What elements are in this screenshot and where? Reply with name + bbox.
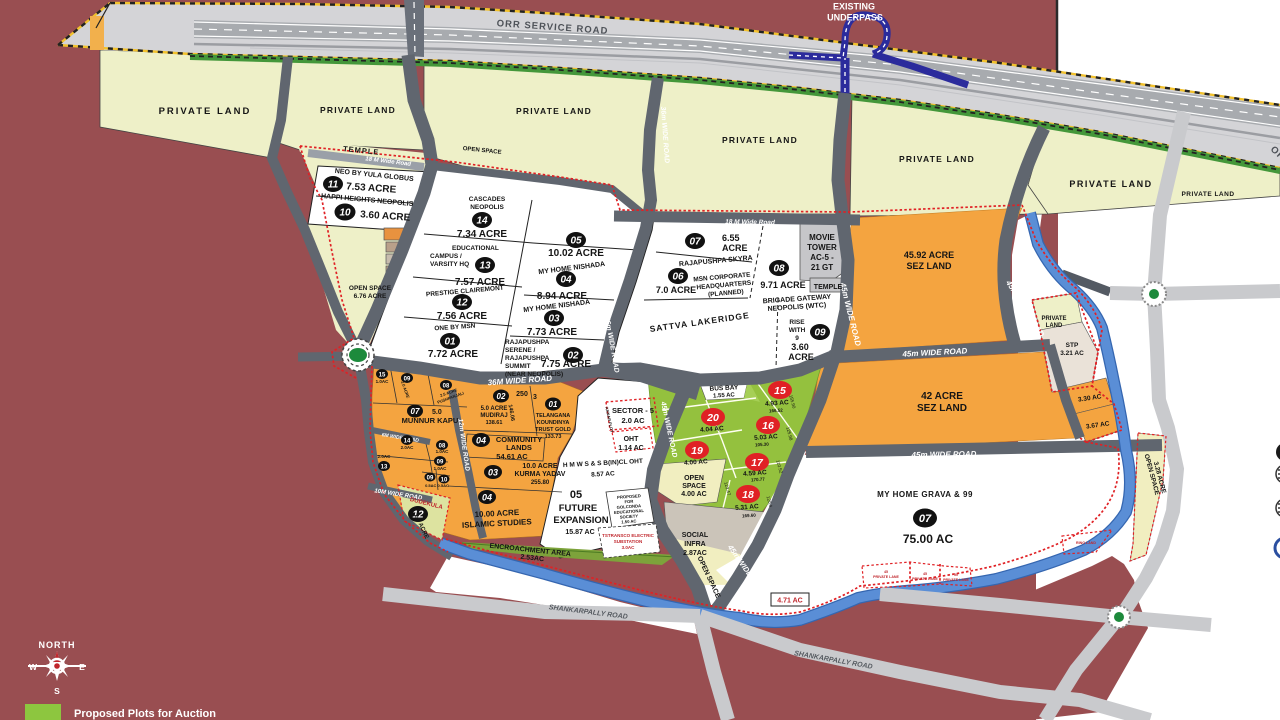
svg-text:45: 45 <box>923 572 927 576</box>
svg-text:20: 20 <box>706 412 719 424</box>
svg-text:18: 18 <box>742 489 754 501</box>
svg-text:NORTH: NORTH <box>39 640 76 650</box>
svg-text:PRIVATE LANE: PRIVATE LANE <box>873 575 899 579</box>
svg-text:11: 11 <box>328 180 339 191</box>
svg-text:08: 08 <box>773 264 785 275</box>
svg-text:TEMPLE: TEMPLE <box>814 284 843 291</box>
svg-text:STP: STP <box>1066 342 1079 349</box>
svg-text:SEZ LAND: SEZ LAND <box>907 261 953 271</box>
svg-text:PRIVATE LAND: PRIVATE LAND <box>722 135 798 145</box>
svg-text:15: 15 <box>774 385 786 397</box>
svg-text:UNDERPASS: UNDERPASS <box>827 13 883 23</box>
svg-text:17: 17 <box>751 457 764 469</box>
svg-text:7.73 ACRE: 7.73 ACRE <box>527 327 578 338</box>
svg-text:1.0AC: 1.0AC <box>376 379 390 384</box>
svg-text:EDUCATIONAL: EDUCATIONAL <box>452 245 499 252</box>
svg-text:6.55: 6.55 <box>722 233 740 243</box>
svg-text:3.21 AC: 3.21 AC <box>1060 350 1084 357</box>
svg-text:OHT: OHT <box>624 436 640 443</box>
svg-text:138.61: 138.61 <box>486 420 503 426</box>
svg-text:SECTOR - 5: SECTOR - 5 <box>612 406 654 415</box>
svg-text:1.50 AC: 1.50 AC <box>621 518 637 524</box>
svg-text:05: 05 <box>570 489 582 501</box>
svg-text:07: 07 <box>919 513 932 525</box>
svg-text:9.71 ACRE: 9.71 ACRE <box>760 280 805 290</box>
svg-text:7.56 ACRE: 7.56 ACRE <box>437 311 488 322</box>
svg-text:KURMA YADAV: KURMA YADAV <box>515 471 566 478</box>
svg-text:PRIVATE LAND: PRIVATE LAND <box>159 106 252 117</box>
svg-text:170.77: 170.77 <box>751 476 766 482</box>
svg-text:VARSITY HQ: VARSITY HQ <box>430 261 469 268</box>
svg-text:01: 01 <box>444 337 456 348</box>
svg-text:15: 15 <box>379 373 386 379</box>
svg-text:09: 09 <box>437 460 444 466</box>
svg-text:PRIVATE LANE: PRIVATE LANE <box>912 577 938 581</box>
svg-text:FUTURE: FUTURE <box>559 503 598 514</box>
svg-text:(NEAR NEOPOLIS): (NEAR NEOPOLIS) <box>505 371 563 378</box>
svg-text:2.0AC: 2.0AC <box>401 445 415 450</box>
svg-text:09: 09 <box>814 328 826 339</box>
svg-text:133.73: 133.73 <box>545 434 562 440</box>
svg-text:PRIVATE LAND: PRIVATE LAND <box>1069 179 1152 189</box>
svg-text:07: 07 <box>411 407 420 416</box>
svg-text:EXPANSION: EXPANSION <box>553 515 608 526</box>
svg-text:TELANGANA: TELANGANA <box>536 413 571 419</box>
svg-text:S: S <box>54 686 60 696</box>
svg-text:NEOPOLIS: NEOPOLIS <box>470 204 504 211</box>
svg-text:CAMPUS /: CAMPUS / <box>430 253 462 260</box>
svg-text:7.34 ACRE: 7.34 ACRE <box>457 229 508 240</box>
svg-text:01: 01 <box>549 400 558 409</box>
svg-text:MUNNUR KAPU: MUNNUR KAPU <box>402 416 459 425</box>
svg-text:SUMMIT: SUMMIT <box>505 363 531 370</box>
svg-text:13: 13 <box>479 261 491 272</box>
svg-text:ACRE: ACRE <box>788 352 814 362</box>
svg-text:TRUST GOLD: TRUST GOLD <box>535 427 571 433</box>
svg-text:MY HOME GRAVA & 99: MY HOME GRAVA & 99 <box>877 490 973 499</box>
svg-text:KOUNDINYA: KOUNDINYA <box>537 420 570 426</box>
svg-text:1.0AC: 1.0AC <box>434 466 448 471</box>
svg-text:OPEN SPACE: OPEN SPACE <box>349 285 392 292</box>
svg-text:PRIVATE: PRIVATE <box>1041 316 1066 322</box>
svg-text:02: 02 <box>497 392 506 401</box>
svg-text:10: 10 <box>339 208 351 219</box>
svg-text:RING LAND: RING LAND <box>1076 541 1096 545</box>
svg-text:0.5AC 0.5AC: 0.5AC 0.5AC <box>425 483 449 488</box>
svg-text:AC-5 -: AC-5 - <box>810 253 834 262</box>
svg-text:03: 03 <box>488 468 498 478</box>
svg-text:45: 45 <box>884 570 888 574</box>
svg-text:12: 12 <box>456 298 468 309</box>
svg-text:04: 04 <box>476 436 486 446</box>
svg-text:SPACE: SPACE <box>682 483 706 490</box>
svg-text:2.0 AC: 2.0 AC <box>621 416 645 425</box>
svg-text:03: 03 <box>548 314 560 325</box>
svg-text:E: E <box>79 662 85 672</box>
svg-text:06: 06 <box>672 272 684 283</box>
svg-text:75.00 AC: 75.00 AC <box>903 532 954 546</box>
svg-text:54.61 AC: 54.61 AC <box>496 452 528 461</box>
svg-text:PRIVATE LAND: PRIVATE LAND <box>516 106 592 116</box>
svg-text:LANDS: LANDS <box>506 443 532 452</box>
svg-text:INFRA: INFRA <box>684 541 705 548</box>
svg-text:MUDIRAJ: MUDIRAJ <box>480 413 507 419</box>
svg-text:TSTRANSCO ELECTRIC: TSTRANSCO ELECTRIC <box>602 533 655 538</box>
svg-text:7.0 ACRE: 7.0 ACRE <box>656 285 696 295</box>
svg-text:19: 19 <box>691 445 703 457</box>
svg-text:PRIVATE LAND: PRIVATE LAND <box>1181 191 1234 198</box>
svg-text:10.0 ACRE: 10.0 ACRE <box>522 463 557 470</box>
svg-text:21 GT: 21 GT <box>811 263 833 272</box>
svg-text:42 ACRE: 42 ACRE <box>921 391 963 402</box>
svg-text:14: 14 <box>404 439 411 445</box>
svg-text:105.30: 105.30 <box>755 441 770 447</box>
svg-text:CASCADES: CASCADES <box>469 196 506 203</box>
svg-text:TOWER: TOWER <box>807 243 837 252</box>
svg-text:PRIVATE LAND: PRIVATE LAND <box>899 154 975 164</box>
svg-text:10.02 ACRE: 10.02 ACRE <box>548 248 604 259</box>
svg-text:2.0AC: 2.0AC <box>378 454 392 459</box>
svg-text:08: 08 <box>443 384 450 390</box>
svg-text:4.00 AC: 4.00 AC <box>681 491 706 498</box>
svg-text:MOVIE: MOVIE <box>809 233 835 242</box>
svg-text:04: 04 <box>482 493 492 503</box>
svg-text:8.57 AC: 8.57 AC <box>591 470 615 478</box>
svg-text:05: 05 <box>570 236 582 247</box>
svg-text:166.52: 166.52 <box>769 407 784 413</box>
svg-text:EXISTING: EXISTING <box>833 2 875 12</box>
svg-text:W: W <box>29 662 38 672</box>
svg-text:PRIVATE LANE: PRIVATE LANE <box>943 578 969 582</box>
svg-text:07: 07 <box>689 237 701 248</box>
svg-text:LAND: LAND <box>1046 323 1063 329</box>
svg-text:WITH: WITH <box>789 327 806 334</box>
svg-text:45.92 ACRE: 45.92 ACRE <box>904 250 954 260</box>
svg-text:SUBSTATION: SUBSTATION <box>614 539 643 544</box>
svg-text:45m WIDE ROAD: 45m WIDE ROAD <box>910 449 976 459</box>
svg-text:Proposed Plots for Auction: Proposed Plots for Auction <box>74 708 216 720</box>
svg-text:7.75 ACRE: 7.75 ACRE <box>541 359 592 370</box>
svg-text:250: 250 <box>516 391 528 398</box>
svg-text:09: 09 <box>427 476 434 482</box>
svg-text:1.14 AC: 1.14 AC <box>618 445 643 452</box>
svg-text:169.60: 169.60 <box>742 512 757 518</box>
svg-text:6.76 ACRE: 6.76 ACRE <box>354 293 387 300</box>
svg-text:50: 50 <box>954 573 958 577</box>
svg-text:13: 13 <box>381 465 388 471</box>
svg-text:3.60: 3.60 <box>791 342 809 352</box>
svg-text:PRIVATE LAND: PRIVATE LAND <box>320 105 396 115</box>
svg-text:3.0AC: 3.0AC <box>622 545 636 550</box>
svg-text:1.0AC: 1.0AC <box>436 449 450 454</box>
svg-text:SERENE /: SERENE / <box>505 347 536 354</box>
svg-text:5.0: 5.0 <box>432 409 442 416</box>
svg-text:16: 16 <box>762 420 774 432</box>
svg-text:9: 9 <box>795 335 799 342</box>
svg-text:5.0 ACRE: 5.0 ACRE <box>481 406 508 412</box>
svg-text:255.80: 255.80 <box>531 480 550 486</box>
svg-text:RISE: RISE <box>789 319 805 326</box>
svg-text:14: 14 <box>476 216 488 227</box>
svg-text:15.87 AC: 15.87 AC <box>565 529 594 536</box>
svg-text:RAJAPUSHPA: RAJAPUSHPA <box>505 339 550 346</box>
svg-text:04: 04 <box>560 275 572 286</box>
svg-text:3: 3 <box>533 394 537 401</box>
svg-text:ACRE: ACRE <box>722 243 748 253</box>
svg-text:18 M Wide Road: 18 M Wide Road <box>725 219 776 227</box>
svg-text:4.71 AC: 4.71 AC <box>777 598 802 605</box>
svg-text:1.55 AC: 1.55 AC <box>713 392 736 399</box>
svg-text:7.72 ACRE: 7.72 ACRE <box>428 349 479 360</box>
svg-text:OPEN: OPEN <box>684 475 704 482</box>
svg-text:SOCIAL: SOCIAL <box>682 532 709 539</box>
svg-text:SEZ LAND: SEZ LAND <box>917 403 967 414</box>
